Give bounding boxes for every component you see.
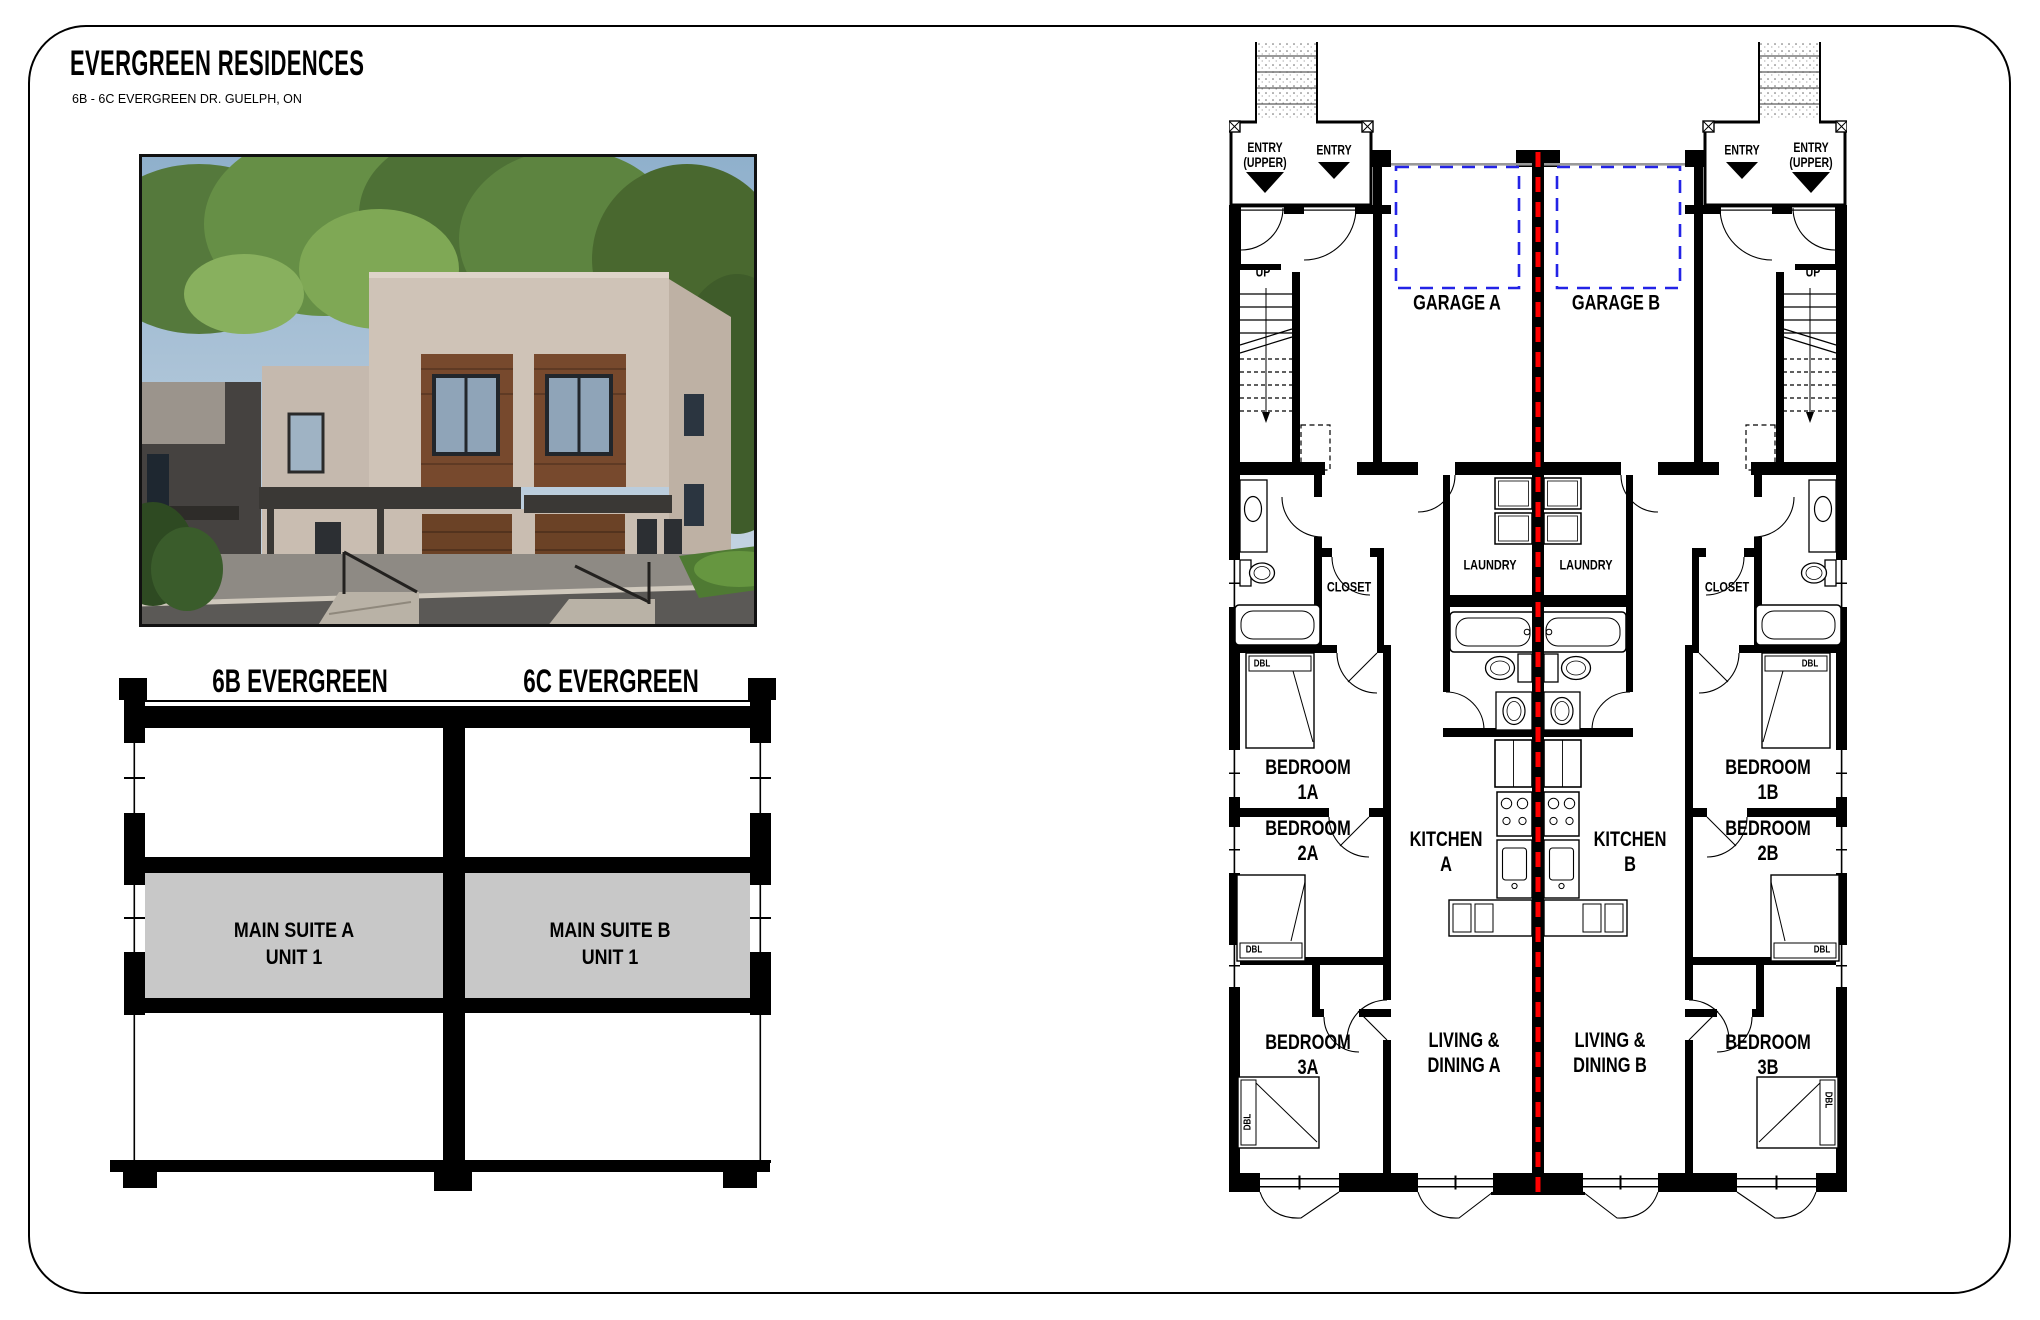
room-label-bedroom-1b: BEDROOM1B xyxy=(1725,755,1811,805)
entry-arrow-icon xyxy=(1246,172,1284,193)
room-label-bedroom-3b: BEDROOM3B xyxy=(1725,1030,1811,1080)
rendering-art xyxy=(139,154,757,627)
room-label-kitchen-a: KITCHENA xyxy=(1410,827,1483,877)
entry-arrow-icon xyxy=(1792,172,1830,193)
room-label-laundry-a: LAUNDRY xyxy=(1464,558,1517,573)
main-suite-a-label: MAIN SUITE AUNIT 1 xyxy=(234,917,354,971)
ground xyxy=(139,546,757,627)
room-label-garage-b: GARAGE B xyxy=(1572,291,1660,316)
building-rendering-photo xyxy=(139,154,757,627)
entry-upper-label-right: ENTRY(UPPER) xyxy=(1789,140,1832,170)
bed-tag-1a: DBL xyxy=(1254,659,1270,670)
entry-label-left: ENTRY xyxy=(1316,143,1351,158)
bed-tag-1b: DBL xyxy=(1802,659,1818,670)
room-label-bedroom-3a: BEDROOM3A xyxy=(1265,1030,1351,1080)
entry-arrow-icon xyxy=(1726,162,1758,179)
room-label-living-b: LIVING &DINING B xyxy=(1573,1028,1647,1078)
bed-tag-3b: DBL xyxy=(1823,1092,1834,1108)
entry-arrow-icon xyxy=(1318,162,1350,179)
building-section-diagram xyxy=(95,655,785,1200)
section-label-6c: 6C EVERGREEN xyxy=(523,664,699,698)
room-label-garage-a: GARAGE A xyxy=(1413,291,1501,316)
bed-tag-2a: DBL xyxy=(1246,945,1262,956)
bed-tag-3a: DBL xyxy=(1243,1114,1254,1130)
section-label-6b: 6B EVERGREEN xyxy=(212,664,388,698)
room-label-living-a: LIVING &DINING A xyxy=(1427,1028,1500,1078)
entry-upper-label-left: ENTRY(UPPER) xyxy=(1243,140,1286,170)
page-subtitle: 6B - 6C EVERGREEN DR. GUELPH, ON xyxy=(72,92,302,106)
bed-tag-2b: DBL xyxy=(1814,945,1830,956)
entry-label-right: ENTRY xyxy=(1724,143,1759,158)
room-label-closet-b: CLOSET xyxy=(1705,580,1749,595)
room-label-bedroom-1a: BEDROOM1A xyxy=(1265,755,1351,805)
section-drawing xyxy=(95,655,785,1200)
room-label-bedroom-2a: BEDROOM2A xyxy=(1265,816,1351,866)
page-title: EVERGREEN RESIDENCES xyxy=(70,44,364,84)
drawing-sheet: EVERGREEN RESIDENCES 6B - 6C EVERGREEN D… xyxy=(0,0,2040,1320)
stair-up-label-b: UP xyxy=(1806,265,1821,280)
room-label-closet-a: CLOSET xyxy=(1327,580,1371,595)
room-label-bedroom-2b: BEDROOM2B xyxy=(1725,816,1811,866)
main-suite-b-label: MAIN SUITE BUNIT 1 xyxy=(550,917,671,971)
room-label-laundry-b: LAUNDRY xyxy=(1560,558,1613,573)
stair-up-label-a: UP xyxy=(1256,265,1271,280)
room-label-kitchen-b: KITCHENB xyxy=(1594,827,1667,877)
